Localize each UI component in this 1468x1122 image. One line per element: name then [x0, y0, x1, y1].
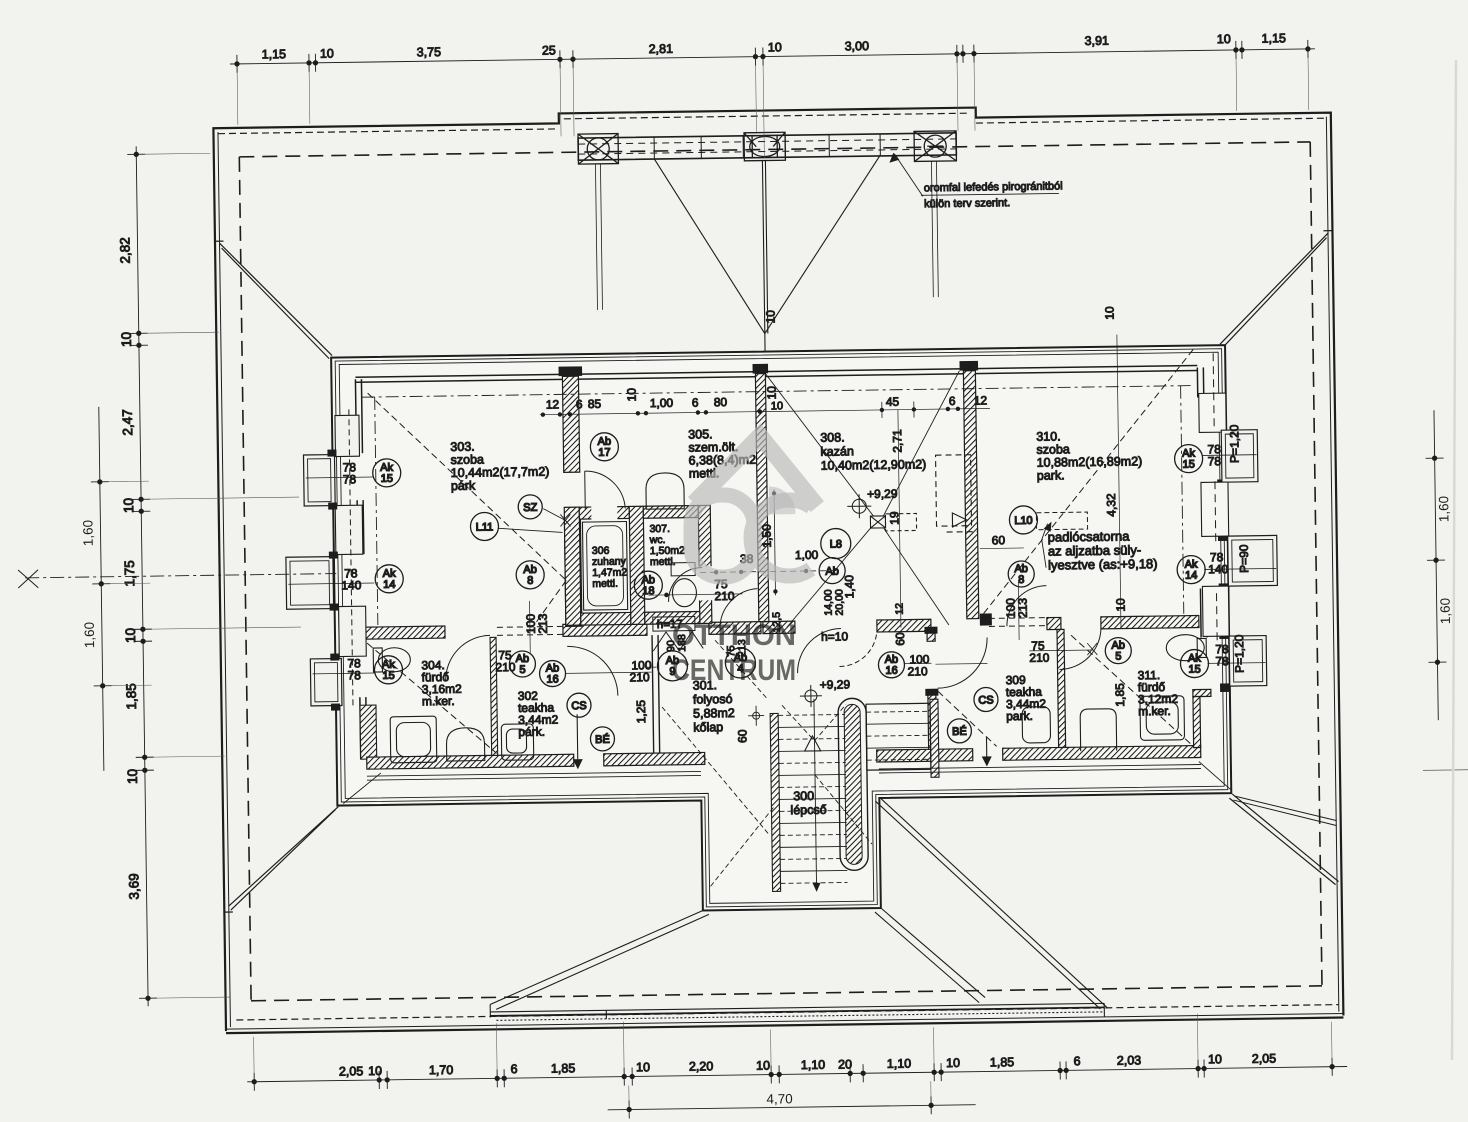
svg-text:L11: L11: [476, 521, 494, 533]
svg-text:2,82: 2,82: [117, 237, 132, 263]
svg-text:párk: párk: [451, 479, 476, 493]
svg-text:CENTRUM: CENTRUM: [672, 654, 796, 687]
svg-text:10: 10: [636, 1060, 650, 1074]
svg-text:3,91: 3,91: [1085, 34, 1110, 48]
svg-text:1,00: 1,00: [795, 548, 819, 562]
svg-text:10: 10: [119, 332, 134, 347]
svg-text:CS: CS: [978, 694, 993, 706]
svg-text:folyosó: folyosó: [693, 692, 733, 707]
svg-text:5,88m2: 5,88m2: [693, 706, 735, 721]
svg-text:P=90: P=90: [1237, 544, 1251, 573]
svg-text:1,60: 1,60: [1436, 496, 1451, 522]
svg-text:10: 10: [1102, 306, 1116, 320]
svg-text:SZ: SZ: [523, 502, 538, 514]
svg-text:4,32: 4,32: [1104, 493, 1118, 517]
svg-text:10,88m2(16,89m2): 10,88m2(16,89m2): [1037, 454, 1143, 469]
svg-text:2,47: 2,47: [120, 409, 135, 435]
svg-text:10: 10: [625, 388, 639, 402]
svg-text:20: 20: [838, 1057, 852, 1071]
svg-text:6: 6: [576, 397, 583, 411]
svg-text:10: 10: [1208, 1052, 1222, 1066]
svg-text:1,60: 1,60: [1438, 598, 1453, 624]
svg-text:kazán: kazán: [820, 444, 854, 458]
svg-text:10,44m2(17,7m2): 10,44m2(17,7m2): [451, 465, 550, 480]
svg-text:19: 19: [887, 511, 901, 525]
svg-text:Ab: Ab: [825, 566, 839, 578]
svg-text:külön terv szerint.: külön terv szerint.: [924, 197, 1010, 210]
svg-text:14: 14: [1185, 570, 1197, 582]
svg-text:2,71: 2,71: [890, 429, 904, 453]
svg-text:1,25: 1,25: [634, 700, 648, 724]
svg-text:1,85: 1,85: [990, 1055, 1015, 1069]
svg-text:BÉ: BÉ: [952, 725, 967, 738]
svg-text:oromfal lefedés pirogránitból: oromfal lefedés pirogránitból: [924, 180, 1063, 194]
svg-text:1,10: 1,10: [801, 1058, 826, 1072]
svg-text:78: 78: [343, 472, 357, 486]
svg-text:60: 60: [735, 729, 749, 743]
svg-text:6: 6: [510, 1062, 517, 1076]
svg-text:2,05: 2,05: [1252, 1051, 1277, 1065]
svg-text:mettl.: mettl.: [650, 556, 676, 568]
svg-text:45: 45: [886, 395, 900, 409]
svg-text:1,75: 1,75: [122, 560, 137, 586]
svg-text:10: 10: [1114, 598, 1128, 612]
svg-text:lyesztve (as:+9,18): lyesztve (as:+9,18): [1048, 556, 1158, 573]
svg-text:1,10: 1,10: [887, 1057, 912, 1071]
svg-text:12: 12: [974, 393, 988, 407]
svg-text:mettl.: mettl.: [592, 578, 618, 590]
svg-text:BÉ: BÉ: [595, 733, 610, 746]
svg-text:10: 10: [320, 47, 334, 61]
svg-text:10: 10: [768, 40, 782, 54]
svg-text:60: 60: [893, 632, 907, 646]
svg-text:+9,29: +9,29: [867, 487, 898, 501]
svg-text:L8: L8: [830, 538, 842, 550]
svg-text:300: 300: [793, 789, 814, 803]
svg-text:16: 16: [885, 665, 897, 677]
svg-text:15: 15: [381, 473, 393, 485]
svg-text:15: 15: [382, 670, 394, 682]
svg-text:213: 213: [1016, 598, 1030, 619]
svg-text:15: 15: [1188, 663, 1200, 675]
svg-text:1,85: 1,85: [1113, 683, 1127, 707]
svg-text:210: 210: [714, 589, 735, 603]
svg-text:park.: park.: [1006, 709, 1033, 723]
svg-text:213: 213: [536, 613, 550, 634]
svg-text:15: 15: [1182, 459, 1194, 471]
svg-text:1,15: 1,15: [262, 47, 287, 61]
svg-text:10: 10: [771, 400, 783, 412]
svg-text:2,20: 2,20: [689, 1059, 714, 1073]
svg-text:10: 10: [121, 498, 136, 513]
svg-text:10: 10: [125, 769, 140, 784]
svg-text:17: 17: [598, 447, 610, 459]
svg-text:park.: park.: [1037, 468, 1065, 482]
svg-text:6: 6: [949, 394, 956, 408]
svg-text:P=1,20: P=1,20: [1227, 424, 1242, 463]
svg-text:210: 210: [907, 664, 928, 678]
svg-text:80: 80: [714, 395, 728, 409]
svg-text:8: 8: [1018, 574, 1024, 586]
svg-text:12: 12: [546, 397, 560, 411]
svg-text:14: 14: [383, 579, 395, 591]
svg-text:6: 6: [1073, 1054, 1080, 1068]
svg-text:8: 8: [527, 575, 533, 587]
svg-text:3,75: 3,75: [417, 45, 442, 59]
svg-text:25: 25: [542, 43, 556, 57]
svg-text:m.ker.: m.ker.: [1138, 704, 1171, 718]
svg-text:OTTHON: OTTHON: [672, 619, 796, 652]
svg-text:60: 60: [992, 533, 1006, 547]
svg-text:L10: L10: [1014, 515, 1033, 527]
svg-text:10: 10: [1217, 32, 1231, 46]
svg-text:4,70: 4,70: [766, 1091, 792, 1106]
svg-text:1,85: 1,85: [551, 1061, 576, 1075]
svg-text:1,85: 1,85: [124, 683, 139, 709]
svg-text:140: 140: [341, 578, 362, 592]
svg-text:10: 10: [756, 1059, 770, 1073]
svg-text:78: 78: [347, 668, 361, 682]
svg-text:210: 210: [1029, 651, 1050, 665]
svg-text:2,81: 2,81: [649, 42, 674, 56]
svg-text:6: 6: [692, 395, 699, 409]
svg-text:10: 10: [763, 310, 777, 324]
svg-text:308.: 308.: [820, 430, 845, 444]
svg-text:2,03: 2,03: [1117, 1053, 1142, 1067]
svg-text:párk.: párk.: [518, 725, 545, 739]
svg-text:m.ker.: m.ker.: [422, 694, 455, 708]
svg-text:h=10: h=10: [821, 629, 849, 643]
svg-text:3,00: 3,00: [845, 39, 870, 53]
svg-text:10: 10: [946, 1056, 960, 1070]
svg-text:CS: CS: [571, 700, 586, 712]
svg-text:P=1,20: P=1,20: [1232, 634, 1247, 673]
svg-text:1,70: 1,70: [429, 1063, 454, 1077]
svg-text:3,69: 3,69: [126, 873, 141, 899]
svg-text:1,60: 1,60: [82, 622, 97, 648]
svg-text:10: 10: [765, 386, 779, 400]
svg-text:18: 18: [642, 585, 654, 597]
svg-text:5: 5: [519, 664, 525, 676]
svg-text:lépcső: lépcső: [790, 803, 826, 818]
svg-text:10: 10: [368, 1064, 382, 1078]
svg-text:85: 85: [588, 397, 602, 411]
svg-text:+9,29: +9,29: [820, 677, 851, 691]
svg-text:1,60: 1,60: [80, 520, 95, 546]
svg-text:2,05: 2,05: [339, 1064, 364, 1078]
svg-text:140: 140: [1208, 562, 1229, 576]
svg-text:10: 10: [123, 628, 138, 643]
svg-text:78: 78: [1215, 654, 1229, 668]
svg-text:kőlap: kőlap: [693, 720, 723, 734]
svg-text:78: 78: [1208, 454, 1222, 468]
svg-text:12: 12: [894, 603, 906, 615]
svg-text:5: 5: [1115, 651, 1121, 663]
svg-text:20,00: 20,00: [833, 589, 845, 616]
svg-text:16: 16: [546, 673, 558, 685]
svg-text:1,00: 1,00: [650, 396, 674, 410]
svg-text:1,15: 1,15: [1261, 31, 1286, 45]
svg-text:1,50: 1,50: [759, 524, 773, 548]
svg-text:10,40m2(12,90m2): 10,40m2(12,90m2): [821, 457, 927, 472]
